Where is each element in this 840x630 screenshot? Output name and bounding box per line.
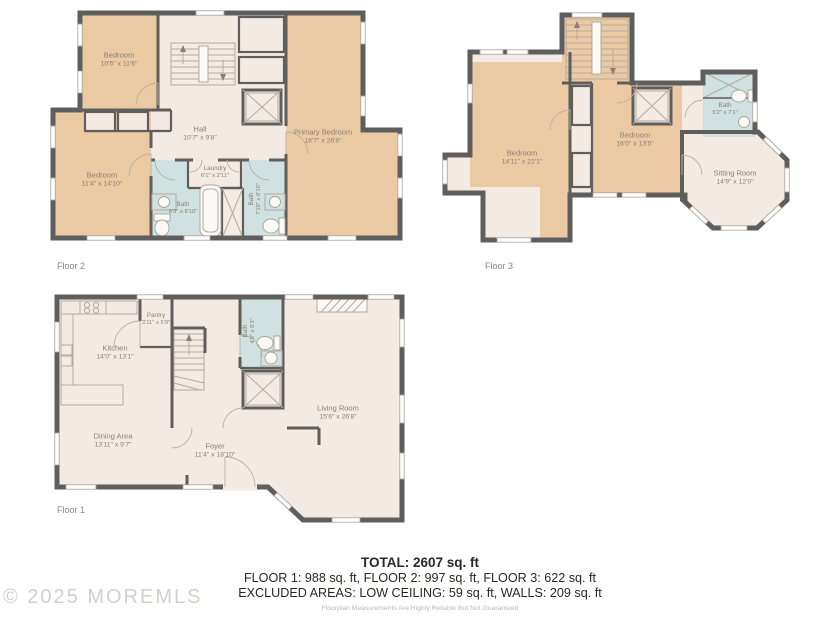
front-door-opening (223, 484, 257, 491)
sink (270, 197, 281, 208)
toilet (732, 90, 747, 102)
toilet (155, 220, 169, 236)
room-label-laundry: Laundry 6'1" x 2'11" (201, 165, 229, 181)
room-label-bedroom: Bedroom 16'0" x 13'5" (616, 131, 653, 150)
room-label-bath: Bath 4'9" x 8'3" (242, 318, 258, 343)
room-label-primary-bedroom: Primary Bedroom 18'7" x 26'8" (294, 128, 352, 147)
toilet (257, 337, 273, 350)
floor-areas-text: FLOOR 1: 988 sq. ft, FLOOR 2: 997 sq. ft… (0, 571, 840, 585)
floor2-drawing (53, 8, 405, 248)
room-label-bath: Bath 5'2" x 7'1" (712, 102, 737, 118)
room-label-living-room: Living Room 15'6" x 26'8" (317, 404, 359, 423)
floor1-plan: Kitchen 14'0" x 13'1" Pantry 3'11" x 5'9… (50, 295, 405, 525)
room-label-bedroom: Bedroom 14'11" x 22'1" (502, 149, 543, 168)
fireplace (317, 299, 367, 312)
toilet-tank (748, 90, 753, 102)
room-label-foyer: Foyer 11'4" x 18'10" (195, 442, 236, 461)
toilet-tank (279, 218, 285, 234)
mls-watermark: © 2025 MOREMLS (3, 586, 202, 609)
toilet (263, 219, 279, 233)
floor1-caption: Floor 1 (57, 505, 85, 515)
floor2-plan: Bedroom 10'5" x 11'6" Bedroom 11'4" x 14… (53, 8, 405, 248)
total-area-text: TOTAL: 2607 sq. ft (0, 555, 840, 570)
floor3-plan: Bedroom 14'11" x 22'1" Bedroom 16'0" x 1… (445, 10, 790, 242)
room-label-bath: Bath 8'3" x 8'10" (169, 201, 198, 217)
floor3-drawing (445, 10, 790, 242)
floor3-caption: Floor 3 (485, 261, 513, 271)
room-label-pantry: Pantry 3'11" x 5'9" (142, 312, 170, 328)
room-label-bedroom: Bedroom 11'4" x 14'10" (82, 171, 123, 190)
sink (265, 352, 277, 364)
shower-stall (243, 90, 281, 124)
room-label-bedroom: Bedroom 10'5" x 11'6" (101, 51, 138, 70)
room-label-kitchen: Kitchen 14'0" x 13'1" (96, 344, 133, 363)
floor2-caption: Floor 2 (57, 261, 85, 271)
room-label-hall: Hall 10'7" x 9'8" (183, 125, 217, 144)
room-label-sitting-room: Sitting Room 14'9" x 12'0" (714, 169, 757, 188)
shower-stall (633, 88, 671, 124)
sink (739, 117, 750, 128)
toilet-tank (274, 336, 280, 350)
floorplan-page: Bedroom 10'5" x 11'6" Bedroom 11'4" x 14… (0, 0, 840, 630)
room-label-bath: Bath 7'10" x 8'10" (248, 183, 264, 215)
room-label-dining-area: Dining Area 13'11" x 9'7" (94, 432, 133, 451)
shower-stall (243, 371, 283, 408)
